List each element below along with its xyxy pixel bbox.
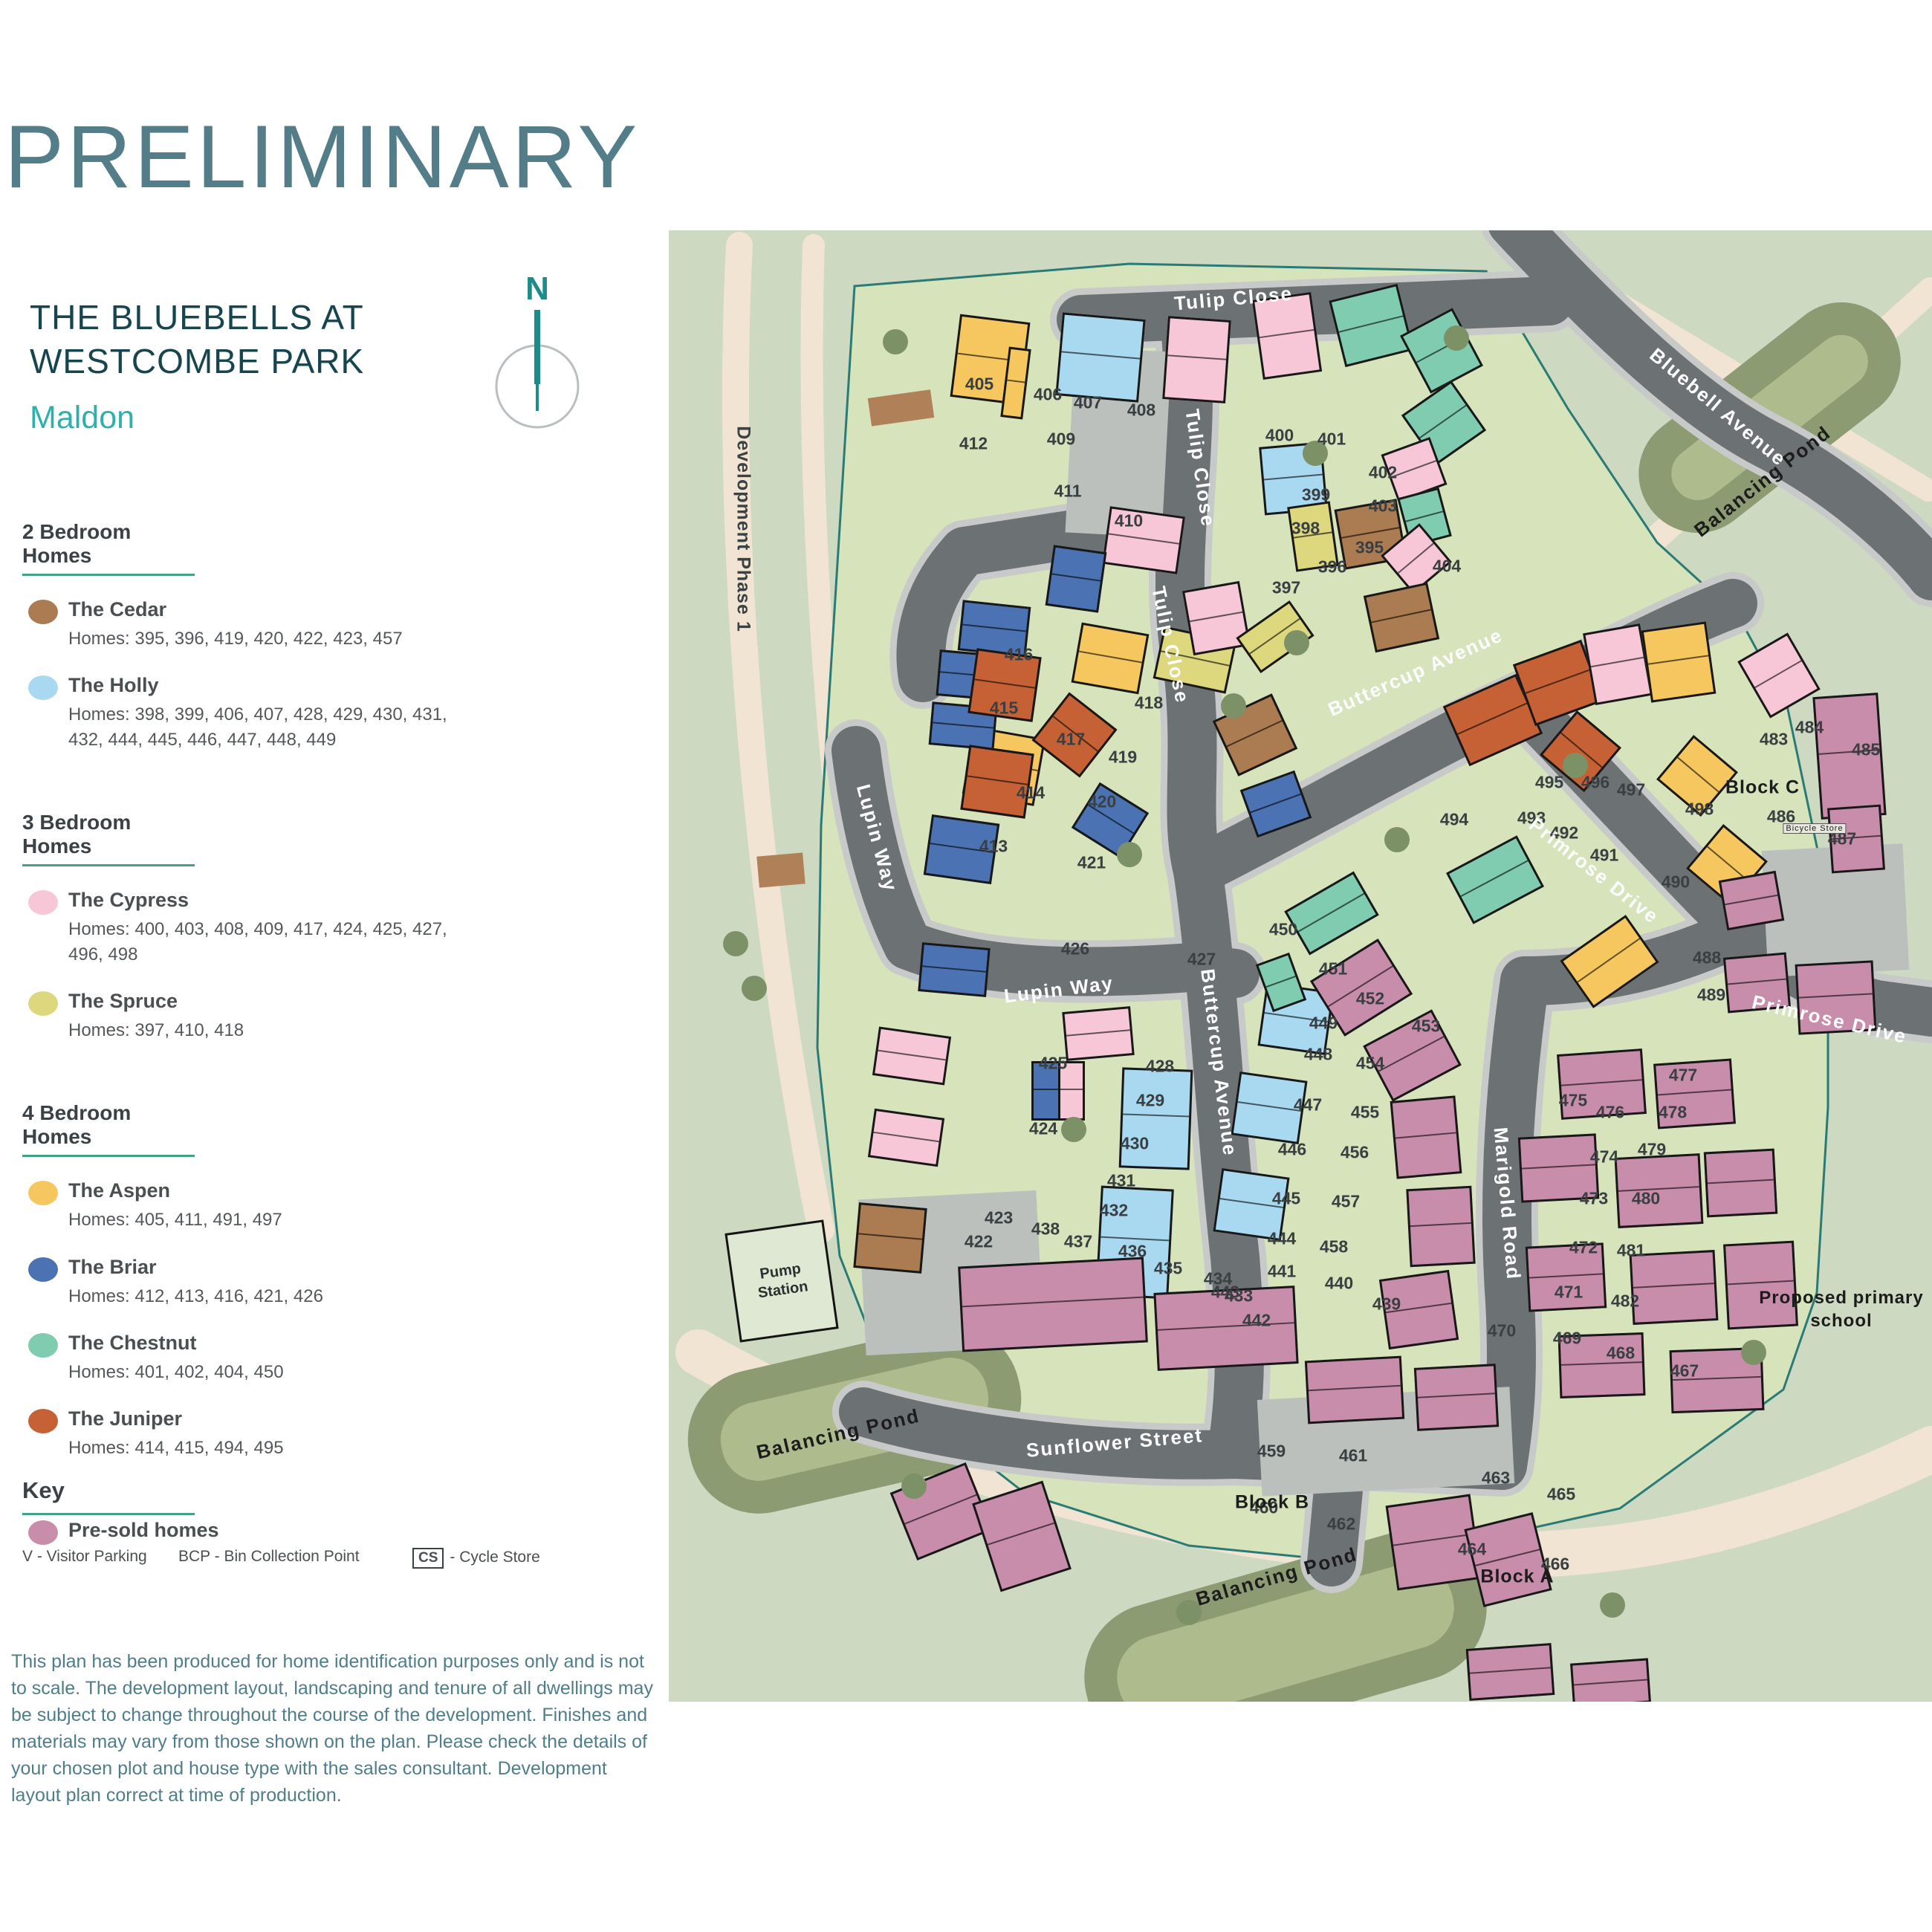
plot-number: 409 [1047,429,1075,450]
key-item: CS- Cycle Store [412,1548,540,1569]
legend-item-name: The Spruce [68,990,244,1013]
spruce-swatch-icon [28,991,58,1016]
plot-number: 425 [1039,1054,1067,1074]
plot-number: 428 [1146,1057,1174,1077]
plot-number: 426 [1061,939,1089,959]
house-presold [1414,1364,1499,1431]
legend-item-name: The Holly [68,674,484,697]
plot-number: 458 [1320,1237,1348,1257]
site-map: Pump Station 395396397398399400401402403… [669,230,1932,1702]
legend-item-text: The SpruceHomes: 397, 410, 418 [68,990,244,1043]
plot-number: 467 [1670,1361,1699,1381]
plot-number: 463 [1482,1468,1510,1488]
plot-number: 496 [1581,773,1610,793]
plot-number: 483 [1760,730,1788,750]
plot-number: 441 [1268,1262,1296,1282]
plot-number: 498 [1685,800,1714,820]
chestnut-swatch-icon [28,1333,58,1358]
house-presold [1630,1250,1719,1325]
plot-number: 418 [1135,693,1163,713]
page-subtitle: Maldon [30,400,134,436]
legend-item-homes: Homes: 398, 399, 406, 407, 428, 429, 430… [68,702,484,753]
legend-item: The SpruceHomes: 397, 410, 418 [22,990,505,1043]
plot-number: 482 [1611,1291,1639,1312]
plot-number: 457 [1332,1192,1360,1212]
plot-number: 490 [1662,872,1690,892]
legend-item: The BriarHomes: 412, 413, 416, 421, 426 [22,1256,505,1309]
tree-icon [1444,325,1469,351]
key-item: V - Visitor Parking [22,1548,147,1566]
plot-number: 416 [1005,645,1033,665]
plot-number: 489 [1697,985,1725,1005]
plot-number: 485 [1852,740,1880,760]
plot-number: 444 [1268,1229,1296,1249]
house-holly [1055,312,1145,402]
plot-number: 427 [1187,950,1216,970]
plot-number: 473 [1580,1189,1608,1209]
house-briar [918,942,990,997]
legend-item-name: The Chestnut [68,1332,284,1355]
plot-number: 446 [1278,1140,1306,1160]
plot-number: 412 [959,434,988,454]
aspen-swatch-icon [28,1181,58,1205]
legend-item-text: The ChestnutHomes: 401, 402, 404, 450 [68,1332,284,1385]
plot-number: 404 [1433,557,1461,577]
svg-text:N: N [525,270,549,307]
legend-item-homes: Homes: 405, 411, 491, 497 [68,1207,282,1233]
plot-number: 494 [1440,810,1468,830]
key-heading: Key [22,1477,195,1515]
plot-number: 419 [1109,748,1137,768]
house-cedar [853,1202,927,1274]
juniper-swatch-icon [28,1409,58,1433]
plot-number: 397 [1272,578,1300,598]
tree-icon [883,329,908,354]
place-label: Development Phase 1 [733,426,754,632]
plot-number: 410 [1115,511,1143,531]
legend-item-homes: Homes: 401, 402, 404, 450 [68,1360,284,1385]
legend-item: The CypressHomes: 400, 403, 408, 409, 41… [22,889,505,967]
plot-number: 443 [1211,1283,1239,1303]
key-items: V - Visitor ParkingBCP - Bin Collection … [22,1548,661,1573]
plot-number: 464 [1458,1540,1486,1560]
title-line2: WESTCOMBE PARK [30,340,364,383]
legend-item-text: The CypressHomes: 400, 403, 408, 409, 41… [68,889,484,967]
house-presold [1406,1186,1475,1267]
legend-item-text: The AspenHomes: 405, 411, 491, 497 [68,1179,282,1233]
place-label: Bicycle Store [1783,823,1846,834]
plot-number: 424 [1029,1119,1057,1139]
plot-number: 432 [1100,1201,1128,1221]
plot-number: 401 [1317,429,1346,450]
plot-number: 421 [1077,853,1106,873]
tree-icon [901,1474,927,1499]
title-line1: THE BLUEBELLS AT [30,296,364,340]
house-holly [1119,1067,1193,1170]
plot-number: 414 [1017,783,1045,803]
plot-number: 453 [1412,1017,1440,1037]
plot-number: 495 [1535,773,1563,793]
briar-swatch-icon [28,1257,58,1282]
compass: N [483,264,594,438]
plot-number: 468 [1607,1343,1635,1364]
plot-number: 431 [1107,1171,1135,1191]
plot-number: 437 [1064,1232,1092,1252]
cypress-swatch-icon [28,890,58,915]
plot-number: 430 [1121,1134,1149,1154]
plot-number: 403 [1369,496,1397,516]
legend-item-homes: Homes: 397, 410, 418 [68,1018,244,1043]
plot-number: 480 [1632,1189,1660,1209]
legend-item-homes: Homes: 412, 413, 416, 421, 426 [68,1284,323,1309]
plot-number: 469 [1553,1329,1581,1349]
plot-number: 462 [1327,1514,1355,1534]
plot-number: 497 [1617,780,1645,800]
legend-item: The ChestnutHomes: 401, 402, 404, 450 [22,1332,505,1385]
legend-section: 4 Bedroom HomesThe AspenHomes: 405, 411,… [22,1101,505,1460]
legend-item-text: The CedarHomes: 395, 396, 419, 420, 422,… [68,598,403,652]
preliminary-watermark: PRELIMINARY [4,106,640,208]
house-presold [1704,1149,1777,1218]
holly-swatch-icon [28,675,58,700]
plot-number: 459 [1257,1442,1286,1462]
plot-number: 395 [1355,538,1384,558]
legend-item-text: The BriarHomes: 412, 413, 416, 421, 426 [68,1256,323,1309]
house-briar [1046,545,1107,612]
place-label: Block A [1480,1566,1554,1588]
legend-item-text: The HollyHomes: 398, 399, 406, 407, 428,… [68,674,484,753]
house-presold [958,1257,1148,1352]
plot-number: 438 [1031,1219,1060,1239]
plot-number: 413 [979,837,1008,857]
legend-item-name: The Juniper [68,1407,284,1430]
legend-section: 2 Bedroom HomesThe CedarHomes: 395, 396,… [22,520,505,753]
plot-number: 442 [1242,1311,1271,1331]
legend-section-heading: 4 Bedroom Homes [22,1101,195,1157]
site-plan-page: PRELIMINARY THE BLUEBELLS AT WESTCOMBE P… [0,0,1932,1932]
legend-section-heading: 3 Bedroom Homes [22,811,195,866]
house-aspen [1072,623,1150,695]
plot-number: 408 [1127,401,1155,421]
tree-icon [1284,630,1309,655]
plot-number: 415 [990,698,1018,719]
legend-item-name: The Briar [68,1256,323,1279]
plot-number: 484 [1795,718,1824,738]
house-presold [1305,1356,1404,1424]
legend-item: The CedarHomes: 395, 396, 419, 420, 422,… [22,598,505,652]
plot-number: 455 [1351,1103,1379,1123]
cedar-swatch-icon [28,600,58,624]
plot-number: 411 [1054,482,1081,502]
plot-number: 447 [1294,1095,1322,1115]
legend: 2 Bedroom HomesThe CedarHomes: 395, 396,… [22,520,505,1605]
plot-number: 479 [1638,1140,1666,1160]
plot-number: 445 [1272,1189,1300,1209]
plot-number: 417 [1057,730,1085,750]
plot-number: 478 [1659,1103,1687,1123]
house-cypress [872,1027,951,1086]
legend-item-text: The JuniperHomes: 414, 415, 494, 495 [68,1407,284,1461]
plot-number: 423 [985,1208,1013,1228]
cycle-store-box-icon: CS [412,1548,444,1569]
house-cypress [1062,1006,1134,1061]
legend-item-homes: Homes: 395, 396, 419, 420, 422, 423, 457 [68,626,403,652]
plot-number: 474 [1590,1147,1618,1167]
house-cypress [868,1109,944,1167]
plot-number: 470 [1488,1321,1516,1341]
tree-icon [1384,827,1410,852]
plot-number: 407 [1074,393,1102,413]
plot-number: 420 [1088,792,1116,812]
plot-number: 435 [1154,1259,1182,1279]
plot-number: 422 [965,1232,993,1252]
tree-icon [1221,693,1246,719]
compass-icon: N [483,264,594,435]
plot-number: 465 [1547,1485,1575,1505]
plot-number: 451 [1319,959,1347,979]
plot-number: 396 [1318,557,1346,577]
plot-number: 402 [1369,463,1397,483]
page-title: THE BLUEBELLS AT WESTCOMBE PARK [30,296,364,383]
tree-icon [1117,842,1142,867]
plot-number: 448 [1304,1045,1332,1065]
tree-icon [723,931,748,956]
legend-section: 3 Bedroom HomesThe CypressHomes: 400, 40… [22,811,505,1043]
plot-number: 439 [1372,1294,1401,1315]
disclaimer-text: This plan has been produced for home ide… [11,1648,659,1809]
legend-item-name: The Aspen [68,1179,282,1202]
legend-item: The JuniperHomes: 414, 415, 494, 495 [22,1407,505,1461]
house-presold [1570,1658,1651,1702]
plot-number: 400 [1265,426,1294,446]
house-presold [1719,871,1785,931]
place-label: Proposed primary school [1756,1286,1927,1332]
plot-number: 472 [1569,1238,1598,1258]
plot-number: 476 [1596,1103,1624,1123]
legend-item-homes: Homes: 414, 415, 494, 495 [68,1436,284,1461]
tree-icon [1061,1117,1086,1142]
legend-item: The AspenHomes: 405, 411, 491, 497 [22,1179,505,1233]
house-aspen [1641,621,1717,702]
plot-number: 450 [1269,920,1297,940]
plot-number: 449 [1309,1014,1338,1034]
house-presold [1390,1095,1462,1179]
legend-item: The HollyHomes: 398, 399, 406, 407, 428,… [22,674,505,753]
plot-number: 456 [1341,1143,1369,1163]
plot-number: 399 [1302,485,1330,505]
legend-item-name: The Cypress [68,889,484,912]
legend-section-heading: 2 Bedroom Homes [22,520,195,576]
plot-number: 461 [1339,1446,1367,1466]
legend-item-name: The Cedar [68,598,403,621]
plot-number: 398 [1291,519,1320,539]
plot-number: 488 [1693,948,1721,968]
legend-item-homes: Homes: 400, 403, 408, 409, 417, 424, 425… [68,917,484,967]
plot-number: 454 [1356,1054,1384,1074]
house-presold [1466,1643,1555,1701]
pump-station: Pump Station [724,1219,838,1342]
plot-number: 440 [1325,1274,1353,1294]
tree-icon [1600,1592,1625,1618]
plot-number: 475 [1559,1091,1587,1111]
plot-number: 429 [1136,1091,1164,1111]
plot-number: 452 [1356,989,1384,1009]
plot-number: 406 [1034,385,1062,405]
place-label: Block B [1235,1492,1309,1514]
plot-number: 471 [1555,1283,1583,1303]
key-item: BCP - Bin Collection Point [178,1548,360,1566]
tree-icon [1741,1340,1766,1365]
place-label: Block C [1725,777,1800,799]
house-cypress [1162,316,1231,403]
house-juniper [960,745,1034,818]
tree-icon [742,976,767,1001]
plot-number: 481 [1617,1241,1645,1261]
plot-number: 405 [965,375,993,395]
map-key: Key V - Visitor ParkingBCP - Bin Collect… [22,1477,661,1573]
plot-number: 436 [1118,1242,1147,1262]
plot-number: 477 [1669,1066,1697,1086]
